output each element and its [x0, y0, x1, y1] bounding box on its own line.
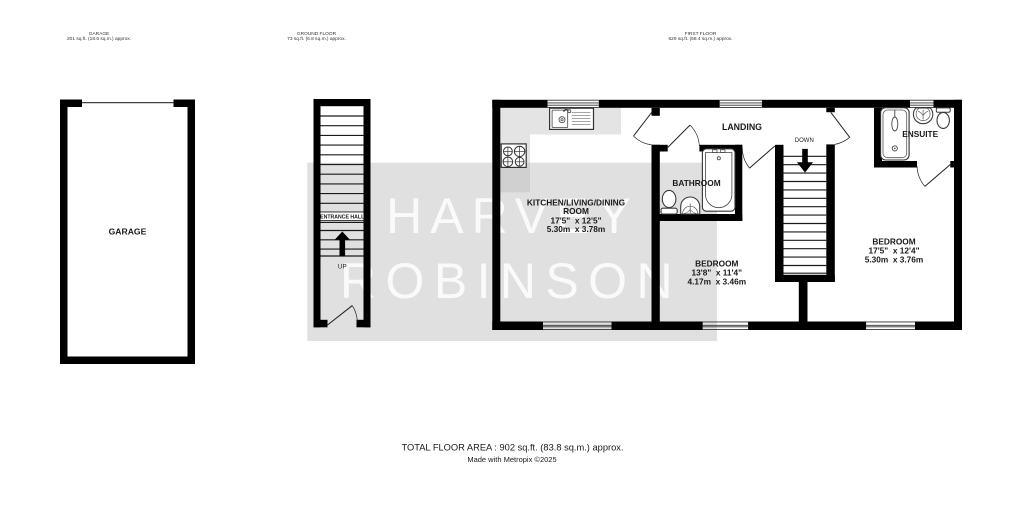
svg-text:201 sq.ft. (18.6 sq.m.) approx: 201 sq.ft. (18.6 sq.m.) approx. — [67, 36, 131, 42]
svg-text:DOWN: DOWN — [795, 138, 814, 144]
svg-text:TOTAL FLOOR AREA : 902 sq.ft.: TOTAL FLOOR AREA : 902 sq.ft. (83.8 sq.m… — [401, 443, 623, 453]
svg-text:UP: UP — [338, 264, 347, 271]
svg-text:73 sq.ft. (6.8 sq.m.) approx.: 73 sq.ft. (6.8 sq.m.) approx. — [287, 36, 346, 42]
svg-text:5.30m x 3.76m: 5.30m x 3.76m — [865, 254, 924, 264]
svg-text:LANDING: LANDING — [722, 122, 762, 132]
svg-text:4.17m x 3.46m: 4.17m x 3.46m — [688, 276, 747, 286]
svg-text:ENSUITE: ENSUITE — [902, 129, 938, 139]
svg-text:Made with Metropix ©2025: Made with Metropix ©2025 — [467, 455, 556, 464]
svg-text:629 sq.ft. (58.4 sq.m.) approx: 629 sq.ft. (58.4 sq.m.) approx. — [669, 36, 733, 42]
svg-text:BATHROOM: BATHROOM — [672, 178, 720, 188]
svg-text:GARAGE: GARAGE — [109, 227, 147, 237]
svg-text:ROBINSON: ROBINSON — [340, 253, 682, 309]
svg-text:ENTRANCE HALL: ENTRANCE HALL — [320, 214, 365, 220]
svg-text:5.30m x 3.78m: 5.30m x 3.78m — [547, 224, 606, 234]
